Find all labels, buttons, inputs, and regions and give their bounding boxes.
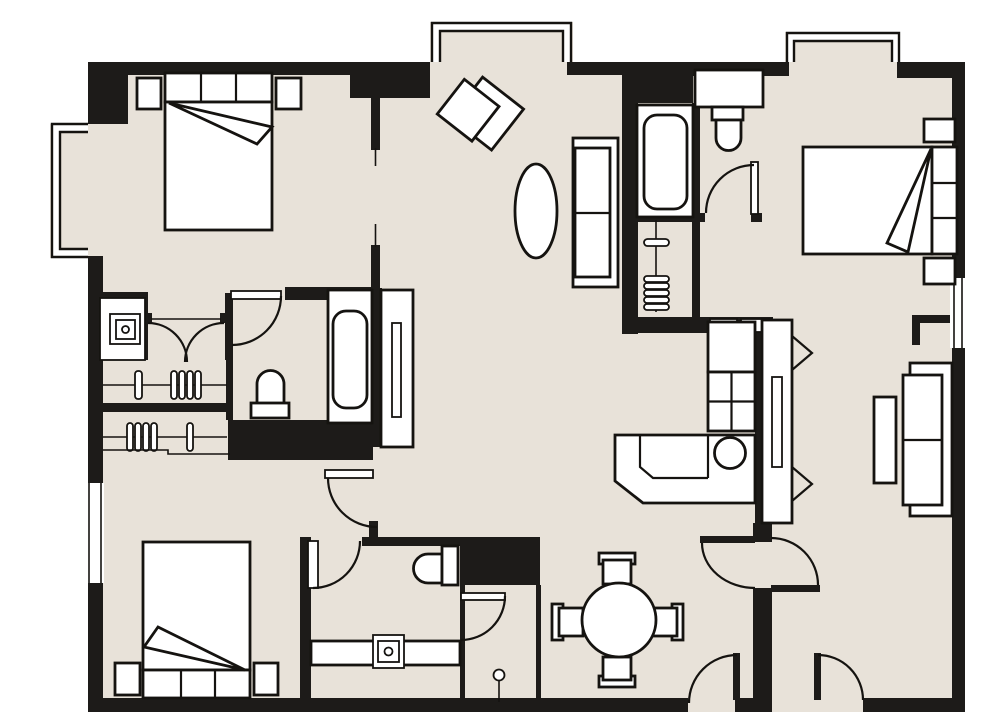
safe-niche: [100, 298, 145, 360]
bay-window-left: [52, 124, 88, 257]
window-right-wall: [950, 278, 966, 348]
nightstand: [254, 663, 278, 695]
floor-plan: [0, 0, 1000, 727]
kitchen-sink: [715, 438, 746, 469]
toilet-tank: [442, 546, 458, 585]
bed-pillows: [143, 670, 250, 698]
sink-backsplash: [712, 107, 743, 120]
dining-chair-top: [599, 553, 635, 584]
bathtub: [644, 115, 687, 209]
dining-table: [582, 583, 656, 657]
dining-chair-left: [552, 604, 583, 640]
bathtub: [333, 311, 367, 408]
nightstand: [924, 258, 955, 284]
toilet-bowl: [414, 554, 443, 583]
nightstand: [137, 78, 161, 109]
sink-drain: [385, 648, 393, 656]
oval-table: [515, 164, 557, 258]
floor-plan-page: [0, 0, 1000, 727]
nightstand: [924, 119, 955, 142]
cabinet: [708, 322, 755, 372]
floor-pin: [494, 670, 505, 681]
dining-chair-right: [653, 604, 683, 640]
bed-pillows: [932, 147, 957, 254]
bay-window-top-center: [432, 23, 571, 62]
sink-counter: [695, 70, 763, 107]
bed-pillows: [165, 73, 272, 102]
sink-bowl: [716, 120, 741, 151]
toilet-bowl: [257, 371, 284, 405]
nightstand: [115, 663, 140, 695]
coffee-table: [874, 397, 896, 483]
bay-window-top-right: [787, 33, 899, 62]
toilet-tank: [251, 403, 289, 418]
window-left-wall: [86, 483, 104, 583]
nightstand: [276, 78, 301, 109]
dining-chair-bottom: [599, 657, 635, 687]
